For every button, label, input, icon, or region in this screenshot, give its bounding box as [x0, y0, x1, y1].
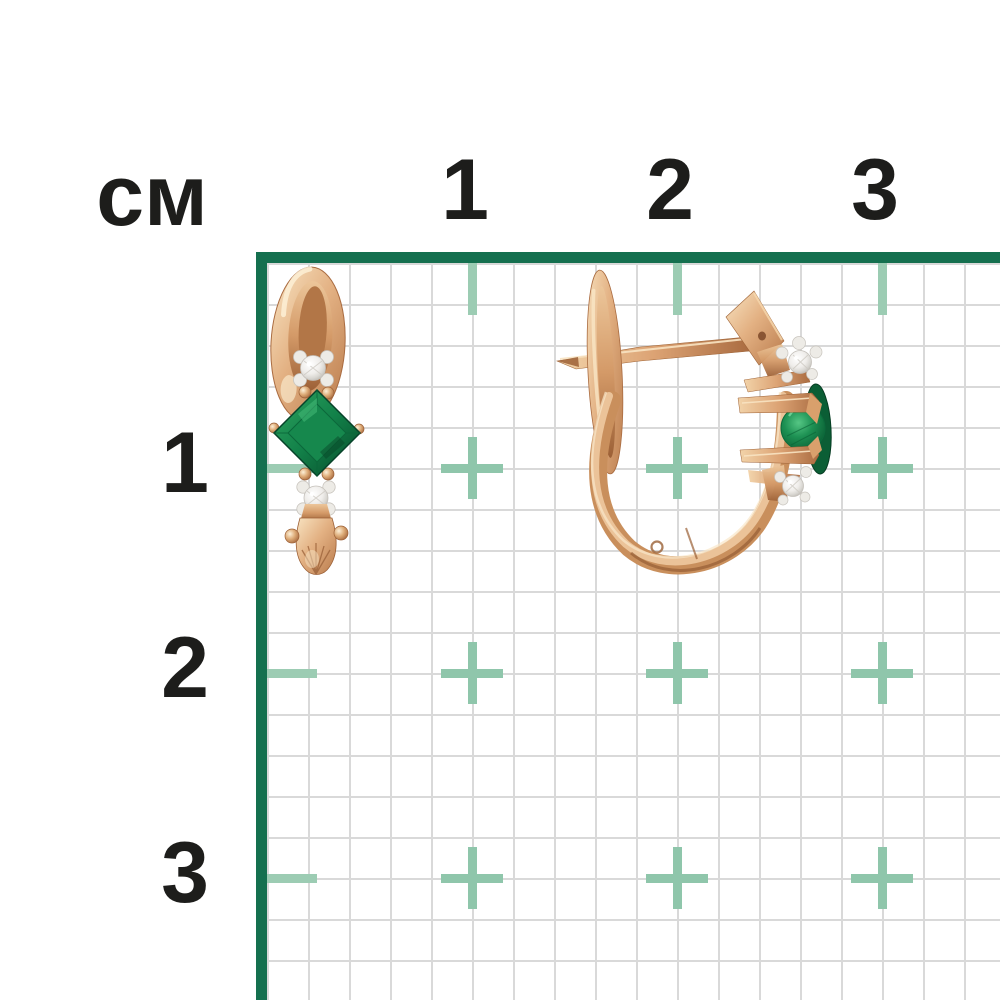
grid-tick-top-3cm — [878, 263, 887, 315]
grid-cross — [441, 437, 503, 499]
ruler-left-label-2: 2 — [161, 625, 209, 711]
ruler-left-label-3: 3 — [161, 830, 209, 916]
grid-tick-left-3cm — [267, 874, 317, 883]
ruler-unit-label: см — [96, 153, 207, 239]
grid-cross — [851, 437, 913, 499]
grid-cross — [646, 847, 708, 909]
grid-cross — [851, 847, 913, 909]
grid-tick-top-1cm — [468, 263, 477, 315]
ruler-top-label-3: 3 — [851, 147, 899, 233]
grid-cross — [441, 642, 503, 704]
ruler-top-label-2: 2 — [646, 147, 694, 233]
size-chart-canvas: см 1 2 3 1 2 3 — [0, 0, 1000, 1000]
grid-cross — [851, 642, 913, 704]
grid-cross — [441, 847, 503, 909]
ruler-left-label-1: 1 — [161, 420, 209, 506]
grid-tick-left-2cm — [267, 669, 317, 678]
grid-tick-left-1cm — [267, 464, 317, 473]
grid-cross — [646, 437, 708, 499]
grid-cross — [646, 642, 708, 704]
grid-tick-top-2cm — [673, 263, 682, 315]
ruler-top-label-1: 1 — [441, 147, 489, 233]
